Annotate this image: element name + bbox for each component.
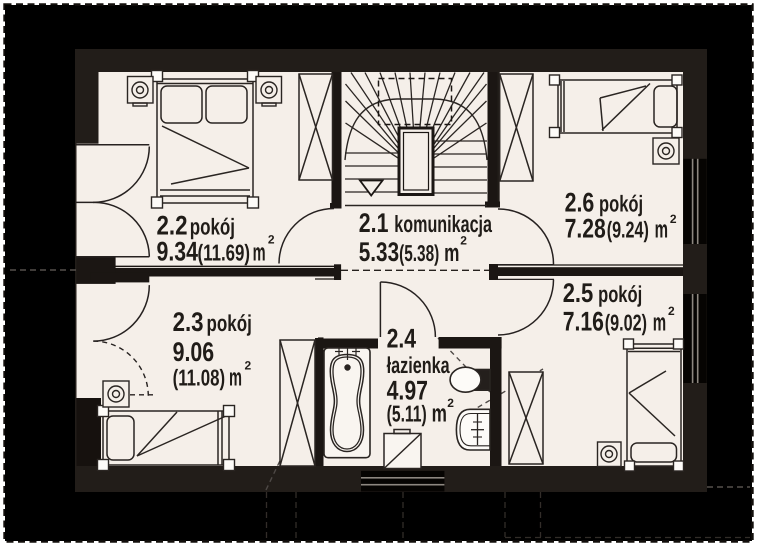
svg-text:5.33: 5.33	[359, 237, 399, 267]
svg-text:2: 2	[447, 396, 454, 410]
svg-text:łazienka: łazienka	[387, 352, 450, 378]
svg-text:2.5: 2.5	[563, 278, 594, 308]
svg-text:(5.38): (5.38)	[399, 240, 439, 266]
svg-text:2.1: 2.1	[359, 208, 389, 238]
svg-text:9.34: 9.34	[157, 236, 199, 266]
svg-text:7.16: 7.16	[563, 307, 604, 337]
svg-text:2.3: 2.3	[173, 307, 204, 337]
svg-text:m: m	[655, 217, 668, 244]
svg-text:2: 2	[460, 233, 467, 247]
svg-text:2.4: 2.4	[387, 324, 417, 354]
svg-text:(9.02): (9.02)	[605, 310, 647, 336]
svg-text:m: m	[432, 401, 447, 428]
svg-text:7.28: 7.28	[565, 214, 606, 244]
svg-text:pokój: pokój	[598, 281, 642, 307]
svg-text:pokój: pokój	[207, 310, 252, 336]
svg-text:m: m	[653, 310, 666, 337]
svg-text:komunikacja: komunikacja	[394, 211, 492, 237]
svg-text:(5.11): (5.11)	[387, 401, 427, 427]
svg-text:2: 2	[268, 233, 275, 247]
svg-text:(11.08): (11.08)	[173, 365, 226, 391]
svg-text:m: m	[253, 239, 266, 266]
svg-text:m: m	[444, 240, 459, 267]
svg-text:(9.24): (9.24)	[607, 217, 649, 243]
svg-text:m: m	[229, 365, 242, 392]
svg-text:2: 2	[670, 212, 677, 226]
svg-text:9.06: 9.06	[173, 337, 215, 367]
svg-text:2: 2	[245, 359, 252, 373]
svg-text:2: 2	[668, 304, 675, 318]
svg-text:(11.69): (11.69)	[198, 239, 251, 265]
